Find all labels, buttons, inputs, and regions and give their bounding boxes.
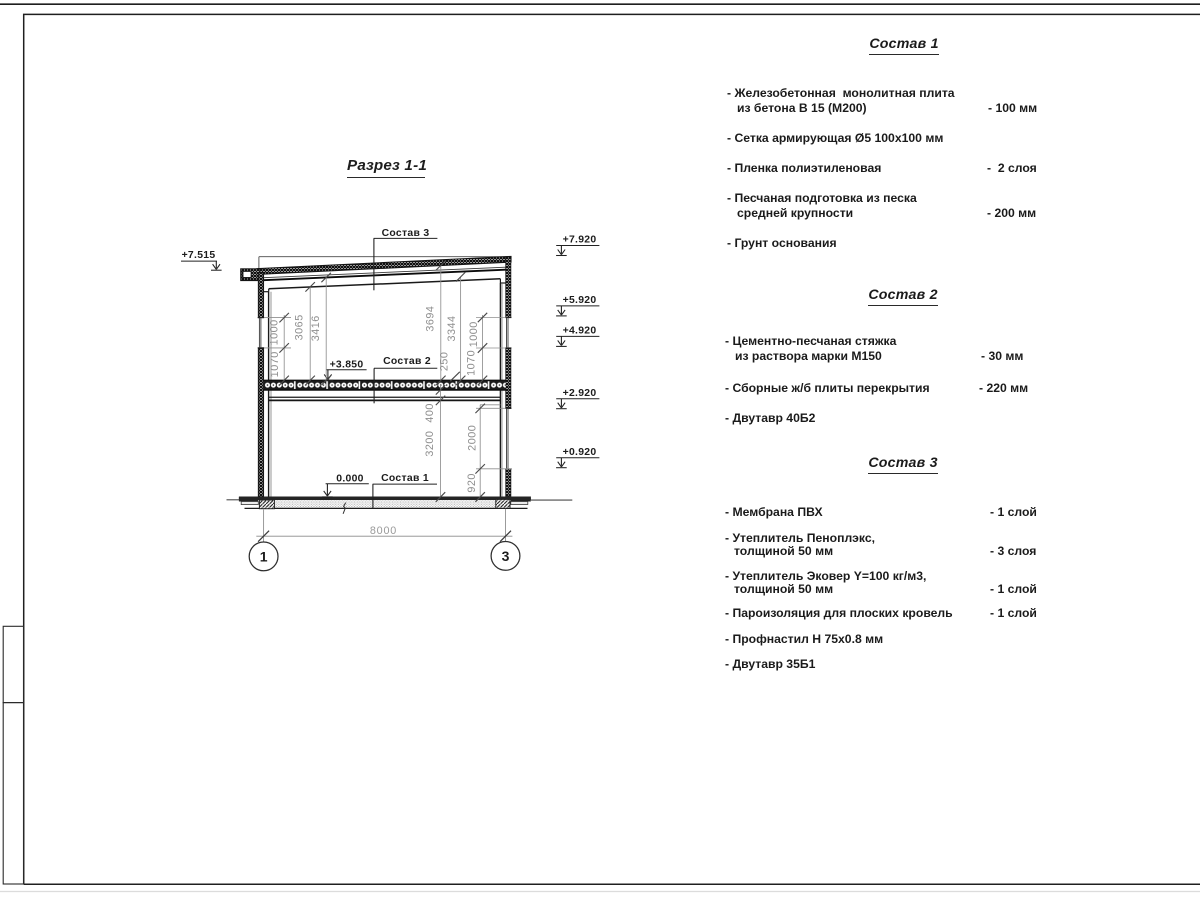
svg-text:1000: 1000: [468, 321, 480, 347]
svg-text:+0.920: +0.920: [563, 447, 597, 458]
svg-text:Состав 3: Состав 3: [382, 228, 430, 239]
svg-text:3694: 3694: [424, 306, 436, 332]
svg-text:Состав 2: Состав 2: [383, 356, 431, 367]
svg-text:2000: 2000: [467, 425, 479, 451]
svg-text:+7.515: +7.515: [182, 250, 216, 261]
svg-text:8000: 8000: [370, 525, 397, 537]
svg-text:3200: 3200: [424, 431, 436, 457]
svg-text:+4.920: +4.920: [563, 326, 597, 337]
svg-text:400: 400: [424, 403, 436, 423]
svg-text:3065: 3065: [293, 314, 305, 340]
svg-text:3344: 3344: [446, 315, 458, 341]
svg-text:1: 1: [260, 548, 268, 564]
svg-text:3416: 3416: [310, 315, 322, 341]
svg-text:1070: 1070: [465, 350, 477, 376]
svg-text:920: 920: [466, 473, 478, 493]
svg-text:0.000: 0.000: [336, 474, 364, 485]
svg-text:+5.920: +5.920: [563, 295, 597, 306]
svg-text:+3.850: +3.850: [330, 360, 364, 371]
svg-text:+7.920: +7.920: [563, 235, 597, 246]
svg-text:Состав 1: Состав 1: [381, 473, 429, 484]
svg-text:+2.920: +2.920: [563, 388, 597, 399]
svg-text:3: 3: [502, 548, 510, 564]
svg-text:1070: 1070: [269, 351, 281, 377]
svg-text:1000: 1000: [268, 319, 280, 345]
svg-text:250: 250: [439, 352, 451, 372]
